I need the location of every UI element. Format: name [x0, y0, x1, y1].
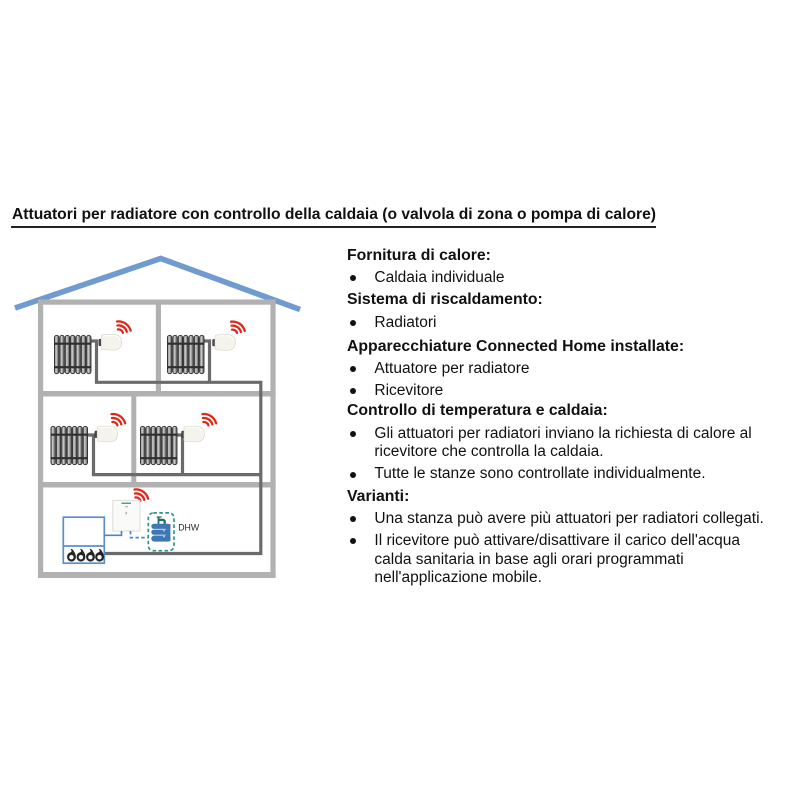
svg-text:DHW: DHW	[178, 522, 200, 532]
